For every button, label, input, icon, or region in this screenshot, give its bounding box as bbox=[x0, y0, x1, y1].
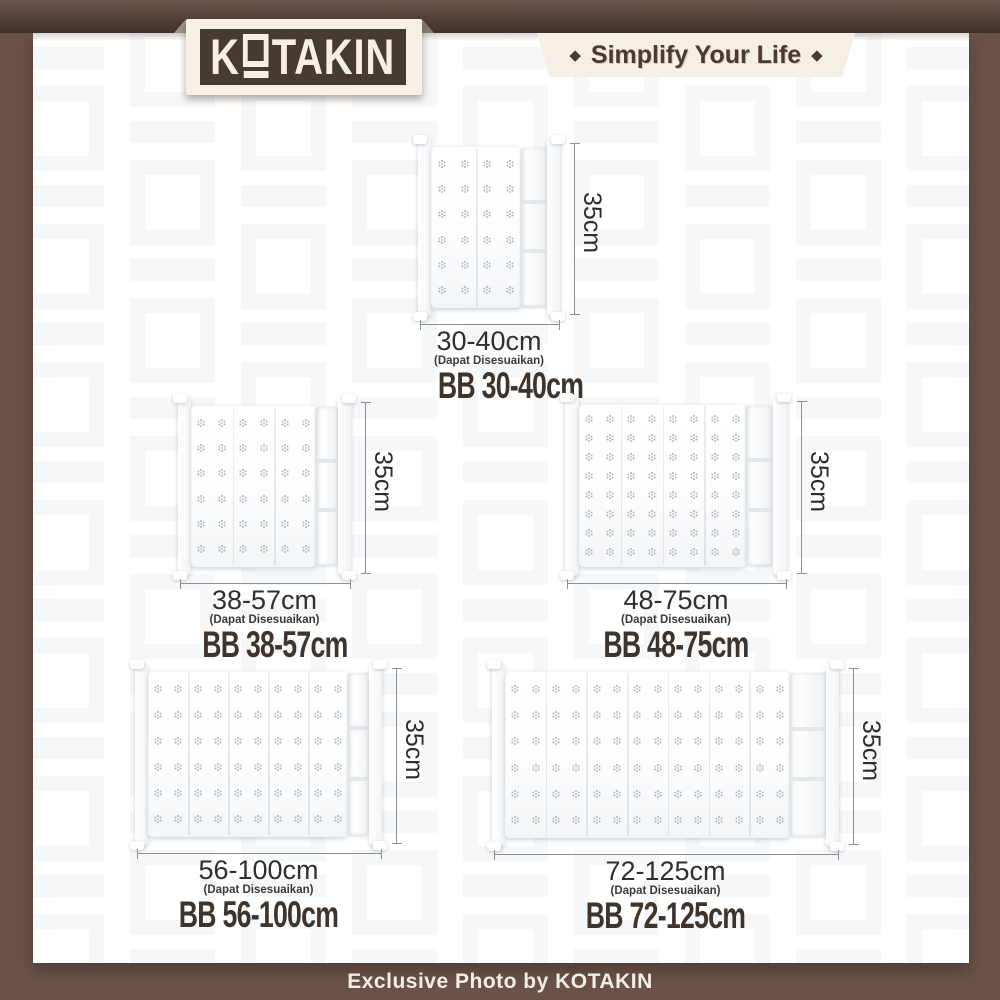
perforation-cluster bbox=[239, 419, 247, 427]
bg-pattern-square bbox=[33, 914, 104, 963]
perforation-cluster bbox=[314, 815, 322, 823]
bg-pattern-bar bbox=[796, 535, 881, 557]
perforation-cluster bbox=[690, 529, 698, 537]
perforated-panel bbox=[579, 404, 746, 567]
bg-pattern-square bbox=[907, 362, 969, 447]
perforation-cluster bbox=[694, 685, 702, 693]
perforation-cluster bbox=[593, 790, 601, 798]
bg-pattern-bar bbox=[574, 121, 659, 143]
perforation-cluster bbox=[585, 529, 593, 537]
shelf-divider-photo bbox=[565, 404, 787, 567]
perforation-cluster bbox=[218, 469, 226, 477]
plate-fold-left bbox=[174, 19, 186, 33]
bg-pattern-bar bbox=[574, 949, 659, 963]
perforation-cluster bbox=[254, 711, 262, 719]
perforation-cluster bbox=[572, 764, 580, 772]
bg-pattern-bar bbox=[352, 949, 437, 963]
perforation-cluster bbox=[483, 185, 491, 193]
perforation-cluster bbox=[281, 520, 289, 528]
perforation-cluster bbox=[294, 789, 302, 797]
width-dimension-label: 38-57cm bbox=[178, 585, 351, 616]
bracket-foot bbox=[830, 660, 844, 669]
bg-pattern-square bbox=[33, 362, 104, 447]
bg-pattern-bar bbox=[130, 949, 215, 963]
perforation-cluster bbox=[461, 160, 469, 168]
perforation-cluster bbox=[483, 286, 491, 294]
perforation-cluster bbox=[334, 711, 342, 719]
bracket-foot bbox=[342, 394, 356, 403]
perforation-cluster bbox=[302, 520, 310, 528]
telescoping-rail bbox=[316, 407, 338, 565]
slat-seam bbox=[586, 673, 588, 836]
perforation-cluster bbox=[648, 548, 656, 556]
bg-pattern-bar bbox=[130, 121, 215, 143]
perforation-cluster bbox=[334, 789, 342, 797]
perforation-cluster bbox=[585, 434, 593, 442]
perforation-cluster bbox=[254, 737, 262, 745]
perforation-cluster bbox=[648, 434, 656, 442]
bg-pattern-square bbox=[33, 638, 104, 723]
perforation-cluster bbox=[197, 495, 205, 503]
perforation-cluster bbox=[532, 711, 540, 719]
plate-fold-right bbox=[422, 19, 434, 33]
perforation-cluster bbox=[735, 764, 743, 772]
height-dimension-label: 35cm bbox=[399, 719, 428, 780]
slat-seam bbox=[476, 148, 478, 306]
perforation-cluster bbox=[613, 764, 621, 772]
slat-seam bbox=[663, 406, 665, 565]
bracket-foot bbox=[487, 660, 501, 669]
perforation-cluster bbox=[314, 737, 322, 745]
perforation-cluster bbox=[154, 763, 162, 771]
diamond-icon: ◆ bbox=[811, 46, 823, 64]
slat-seam bbox=[709, 673, 711, 836]
perforation-cluster bbox=[776, 790, 784, 798]
perforation-cluster bbox=[735, 737, 743, 745]
perforation-cluster bbox=[633, 790, 641, 798]
perforation-cluster bbox=[314, 711, 322, 719]
perforation-cluster bbox=[234, 685, 242, 693]
bg-pattern-square bbox=[907, 638, 969, 723]
perforation-cluster bbox=[654, 790, 662, 798]
perforation-cluster bbox=[334, 685, 342, 693]
bg-pattern-square bbox=[241, 86, 326, 171]
perforation-cluster bbox=[690, 434, 698, 442]
end-bracket-right bbox=[826, 662, 839, 847]
perforation-cluster bbox=[735, 711, 743, 719]
rail-rung bbox=[747, 458, 772, 462]
perforation-cluster bbox=[690, 472, 698, 480]
perforation-cluster bbox=[669, 472, 677, 480]
bg-pattern-bar bbox=[33, 323, 104, 345]
bg-pattern-bar bbox=[463, 599, 548, 621]
perforation-cluster bbox=[234, 737, 242, 745]
telescoping-rail bbox=[746, 406, 773, 565]
perforation-cluster bbox=[627, 415, 635, 423]
product-infographic: K TAKIN ◆ Simplify Your Life ◆ 35cm 30-4… bbox=[0, 0, 1000, 1000]
perforation-cluster bbox=[483, 261, 491, 269]
width-dimension-label: 30-40cm bbox=[418, 326, 560, 357]
perforation-cluster bbox=[294, 815, 302, 823]
perforation-cluster bbox=[756, 816, 764, 824]
perforation-cluster bbox=[314, 789, 322, 797]
rail-rung bbox=[317, 508, 337, 512]
slat-seam bbox=[188, 673, 190, 835]
slat-seam bbox=[268, 673, 270, 835]
shelf-divider-photo bbox=[178, 405, 351, 567]
perforation-cluster bbox=[627, 491, 635, 499]
perforation-cluster bbox=[294, 737, 302, 745]
perforation-cluster bbox=[606, 510, 614, 518]
perforation-cluster bbox=[239, 444, 247, 452]
perforation-cluster bbox=[735, 790, 743, 798]
height-dimension-label: 35cm bbox=[577, 192, 606, 253]
bg-pattern-square bbox=[241, 224, 326, 309]
perforation-cluster bbox=[690, 510, 698, 518]
perforation-cluster bbox=[674, 737, 682, 745]
logo-text-prefix: K bbox=[211, 32, 241, 82]
perforation-cluster bbox=[654, 764, 662, 772]
perforation-cluster bbox=[194, 763, 202, 771]
bg-pattern-bar bbox=[574, 259, 659, 281]
perforation-cluster bbox=[506, 160, 514, 168]
bg-pattern-bar bbox=[33, 599, 104, 621]
bg-pattern-bar bbox=[907, 185, 969, 207]
perforation-cluster bbox=[606, 472, 614, 480]
perforation-cluster bbox=[302, 419, 310, 427]
rail-rung bbox=[349, 777, 368, 781]
perforation-cluster bbox=[154, 789, 162, 797]
perforation-cluster bbox=[715, 816, 723, 824]
telescoping-rail bbox=[521, 148, 547, 306]
perforation-cluster bbox=[585, 510, 593, 518]
perforation-cluster bbox=[627, 548, 635, 556]
bracket-foot bbox=[373, 660, 387, 669]
perforation-cluster bbox=[735, 685, 743, 693]
slat-seam bbox=[274, 407, 276, 565]
bg-pattern-square bbox=[685, 224, 770, 309]
perforation-cluster bbox=[302, 469, 310, 477]
slat-seam bbox=[228, 673, 230, 835]
bg-pattern-bar bbox=[130, 259, 215, 281]
perforation-cluster bbox=[281, 419, 289, 427]
perforation-cluster bbox=[669, 434, 677, 442]
perforation-cluster bbox=[593, 711, 601, 719]
product-bb-56-100: 35cm 56-100cm (Dapat Disesuaikan) BB 56-… bbox=[135, 671, 382, 837]
perforation-cluster bbox=[756, 711, 764, 719]
perforation-cluster bbox=[281, 469, 289, 477]
perforation-cluster bbox=[506, 236, 514, 244]
perforation-cluster bbox=[654, 711, 662, 719]
telescoping-rail bbox=[790, 673, 826, 836]
perforation-cluster bbox=[214, 737, 222, 745]
perforation-cluster bbox=[648, 491, 656, 499]
slat-seam bbox=[621, 406, 623, 565]
perforation-cluster bbox=[572, 790, 580, 798]
end-bracket-left bbox=[135, 662, 148, 846]
perforated-panel bbox=[148, 671, 348, 837]
bg-pattern-square bbox=[796, 574, 881, 659]
bg-pattern-square bbox=[907, 224, 969, 309]
perforation-cluster bbox=[572, 816, 580, 824]
perforation-cluster bbox=[314, 685, 322, 693]
perforation-cluster bbox=[438, 286, 446, 294]
perforation-cluster bbox=[197, 469, 205, 477]
perforation-cluster bbox=[511, 816, 519, 824]
perforation-cluster bbox=[715, 764, 723, 772]
perforation-cluster bbox=[294, 711, 302, 719]
bg-pattern-square bbox=[907, 914, 969, 963]
rail-rung bbox=[522, 249, 546, 253]
perforation-cluster bbox=[532, 685, 540, 693]
bg-pattern-square bbox=[907, 500, 969, 585]
perforation-cluster bbox=[572, 685, 580, 693]
perforation-cluster bbox=[593, 816, 601, 824]
perforation-cluster bbox=[254, 763, 262, 771]
perforation-cluster bbox=[174, 737, 182, 745]
bg-pattern-bar bbox=[796, 259, 881, 281]
perforation-cluster bbox=[669, 453, 677, 461]
perforation-cluster bbox=[239, 469, 247, 477]
product-name: BB 56-100cm bbox=[170, 894, 348, 936]
bg-pattern-bar bbox=[463, 461, 548, 483]
perforation-cluster bbox=[260, 444, 268, 452]
perforation-cluster bbox=[511, 790, 519, 798]
perforation-cluster bbox=[260, 419, 268, 427]
perforation-cluster bbox=[776, 816, 784, 824]
rail-rung bbox=[791, 777, 825, 781]
perforation-cluster bbox=[776, 737, 784, 745]
width-dimension-label: 56-100cm bbox=[135, 855, 382, 886]
shelf-divider-photo bbox=[492, 671, 839, 838]
bracket-foot bbox=[777, 393, 791, 402]
perforation-cluster bbox=[234, 789, 242, 797]
bg-pattern-square bbox=[685, 86, 770, 171]
perforation-cluster bbox=[648, 529, 656, 537]
perforation-cluster bbox=[711, 510, 719, 518]
perforation-cluster bbox=[274, 789, 282, 797]
perforation-cluster bbox=[711, 453, 719, 461]
perforation-cluster bbox=[218, 545, 226, 553]
bg-pattern-bar bbox=[796, 949, 881, 963]
product-bb-72-125: 35cm 72-125cm (Dapat Disesuaikan) BB 72-… bbox=[492, 671, 839, 838]
perforation-cluster bbox=[648, 472, 656, 480]
perforation-cluster bbox=[627, 434, 635, 442]
perforation-cluster bbox=[613, 790, 621, 798]
tagline-text: Simplify Your Life bbox=[591, 41, 801, 70]
bg-pattern-square bbox=[907, 86, 969, 171]
perforation-cluster bbox=[585, 415, 593, 423]
perforation-cluster bbox=[461, 236, 469, 244]
product-name: BB 48-75cm bbox=[596, 624, 756, 666]
perforation-cluster bbox=[197, 520, 205, 528]
perforation-cluster bbox=[234, 763, 242, 771]
perforation-cluster bbox=[483, 160, 491, 168]
rail-rung bbox=[317, 459, 337, 463]
perforation-cluster bbox=[461, 185, 469, 193]
perforation-cluster bbox=[218, 419, 226, 427]
perforation-cluster bbox=[711, 548, 719, 556]
bg-pattern-bar bbox=[33, 461, 104, 483]
perforation-cluster bbox=[214, 711, 222, 719]
perforation-cluster bbox=[174, 711, 182, 719]
perforation-cluster bbox=[260, 469, 268, 477]
perforation-cluster bbox=[483, 236, 491, 244]
perforation-cluster bbox=[461, 261, 469, 269]
perforation-cluster bbox=[606, 453, 614, 461]
perforation-cluster bbox=[633, 764, 641, 772]
perforation-cluster bbox=[294, 763, 302, 771]
product-name: BB 30-40cm bbox=[438, 365, 540, 407]
perforation-cluster bbox=[274, 685, 282, 693]
bg-pattern-bar bbox=[33, 737, 104, 759]
bracket-foot bbox=[413, 135, 427, 144]
perforation-cluster bbox=[606, 434, 614, 442]
perforation-cluster bbox=[552, 711, 560, 719]
perforation-cluster bbox=[214, 789, 222, 797]
perforation-cluster bbox=[690, 453, 698, 461]
rail-rung bbox=[522, 200, 546, 204]
perforation-cluster bbox=[776, 685, 784, 693]
telescoping-rail bbox=[348, 673, 369, 835]
perforation-cluster bbox=[613, 816, 621, 824]
perforation-cluster bbox=[274, 815, 282, 823]
perforation-cluster bbox=[239, 520, 247, 528]
perforated-panel bbox=[431, 146, 521, 308]
perforation-cluster bbox=[613, 685, 621, 693]
logo-row: K TAKIN bbox=[211, 32, 396, 82]
perforation-cluster bbox=[756, 685, 764, 693]
perforation-cluster bbox=[776, 764, 784, 772]
perforation-cluster bbox=[715, 737, 723, 745]
perforation-cluster bbox=[648, 415, 656, 423]
perforation-cluster bbox=[669, 491, 677, 499]
perforation-cluster bbox=[715, 790, 723, 798]
bg-pattern-square bbox=[130, 298, 215, 383]
perforation-cluster bbox=[197, 419, 205, 427]
rail-rung bbox=[791, 727, 825, 731]
perforation-cluster bbox=[674, 816, 682, 824]
bg-pattern-square bbox=[796, 298, 881, 383]
perforation-cluster bbox=[613, 711, 621, 719]
perforation-cluster bbox=[154, 815, 162, 823]
perforation-cluster bbox=[593, 764, 601, 772]
perforated-panel bbox=[191, 405, 316, 567]
bg-pattern-bar bbox=[907, 599, 969, 621]
perforation-cluster bbox=[732, 548, 740, 556]
perforation-cluster bbox=[633, 685, 641, 693]
perforation-cluster bbox=[776, 711, 784, 719]
perforation-cluster bbox=[627, 510, 635, 518]
perforation-cluster bbox=[274, 711, 282, 719]
perforation-cluster bbox=[694, 737, 702, 745]
perforation-cluster bbox=[572, 711, 580, 719]
perforation-cluster bbox=[154, 711, 162, 719]
perforation-cluster bbox=[552, 737, 560, 745]
perforation-cluster bbox=[214, 763, 222, 771]
perforation-cluster bbox=[732, 491, 740, 499]
perforation-cluster bbox=[627, 453, 635, 461]
perforation-cluster bbox=[648, 510, 656, 518]
perforation-cluster bbox=[274, 737, 282, 745]
perforation-cluster bbox=[711, 415, 719, 423]
perforation-cluster bbox=[552, 685, 560, 693]
bg-pattern-square bbox=[352, 574, 437, 659]
perforation-cluster bbox=[715, 711, 723, 719]
product-name: BB 38-57cm bbox=[202, 624, 327, 666]
perforation-cluster bbox=[613, 737, 621, 745]
perforation-cluster bbox=[585, 548, 593, 556]
bg-pattern-square bbox=[574, 298, 659, 383]
perforation-cluster bbox=[532, 816, 540, 824]
slat-seam bbox=[704, 406, 706, 565]
perforation-cluster bbox=[197, 444, 205, 452]
perforation-cluster bbox=[633, 737, 641, 745]
perforation-cluster bbox=[260, 545, 268, 553]
perforation-cluster bbox=[506, 185, 514, 193]
perforation-cluster bbox=[511, 711, 519, 719]
perforation-cluster bbox=[239, 495, 247, 503]
perforation-cluster bbox=[194, 789, 202, 797]
perforation-cluster bbox=[294, 685, 302, 693]
perforation-cluster bbox=[314, 763, 322, 771]
perforation-cluster bbox=[239, 545, 247, 553]
perforated-panel bbox=[505, 671, 790, 838]
perforation-cluster bbox=[735, 816, 743, 824]
perforation-cluster bbox=[669, 529, 677, 537]
bg-pattern-bar bbox=[796, 397, 881, 419]
bg-pattern-square bbox=[463, 914, 548, 963]
perforation-cluster bbox=[648, 453, 656, 461]
perforation-cluster bbox=[532, 764, 540, 772]
perforation-cluster bbox=[532, 790, 540, 798]
end-bracket-left bbox=[418, 137, 431, 317]
perforation-cluster bbox=[174, 789, 182, 797]
bg-pattern-square bbox=[33, 224, 104, 309]
bg-pattern-bar bbox=[463, 47, 548, 69]
bracket-foot bbox=[130, 660, 144, 669]
perforation-cluster bbox=[552, 816, 560, 824]
perforation-cluster bbox=[438, 185, 446, 193]
perforation-cluster bbox=[732, 415, 740, 423]
product-bb-48-75: 35cm 48-75cm (Dapat Disesuaikan) BB 48-7… bbox=[565, 404, 787, 567]
perforation-cluster bbox=[732, 472, 740, 480]
perforation-cluster bbox=[532, 737, 540, 745]
product-bb-38-57: 35cm 38-57cm (Dapat Disesuaikan) BB 38-5… bbox=[178, 405, 351, 567]
perforation-cluster bbox=[334, 763, 342, 771]
slat-seam bbox=[546, 673, 548, 836]
perforation-cluster bbox=[674, 685, 682, 693]
logo-text-suffix: TAKIN bbox=[272, 32, 395, 82]
perforation-cluster bbox=[260, 520, 268, 528]
bg-pattern-square bbox=[796, 160, 881, 245]
bg-pattern-bar bbox=[907, 323, 969, 345]
footer-credit: Exclusive Photo by KOTAKIN bbox=[0, 966, 1000, 1000]
shelf-divider-photo bbox=[135, 671, 382, 837]
perforation-cluster bbox=[254, 815, 262, 823]
perforation-cluster bbox=[461, 210, 469, 218]
end-bracket-right bbox=[338, 396, 351, 576]
bg-pattern-bar bbox=[685, 323, 770, 345]
perforation-cluster bbox=[552, 764, 560, 772]
perforation-cluster bbox=[197, 545, 205, 553]
bg-pattern-bar bbox=[796, 121, 881, 143]
perforation-cluster bbox=[694, 816, 702, 824]
perforation-cluster bbox=[334, 815, 342, 823]
perforation-cluster bbox=[218, 520, 226, 528]
perforation-cluster bbox=[669, 510, 677, 518]
perforation-cluster bbox=[218, 495, 226, 503]
